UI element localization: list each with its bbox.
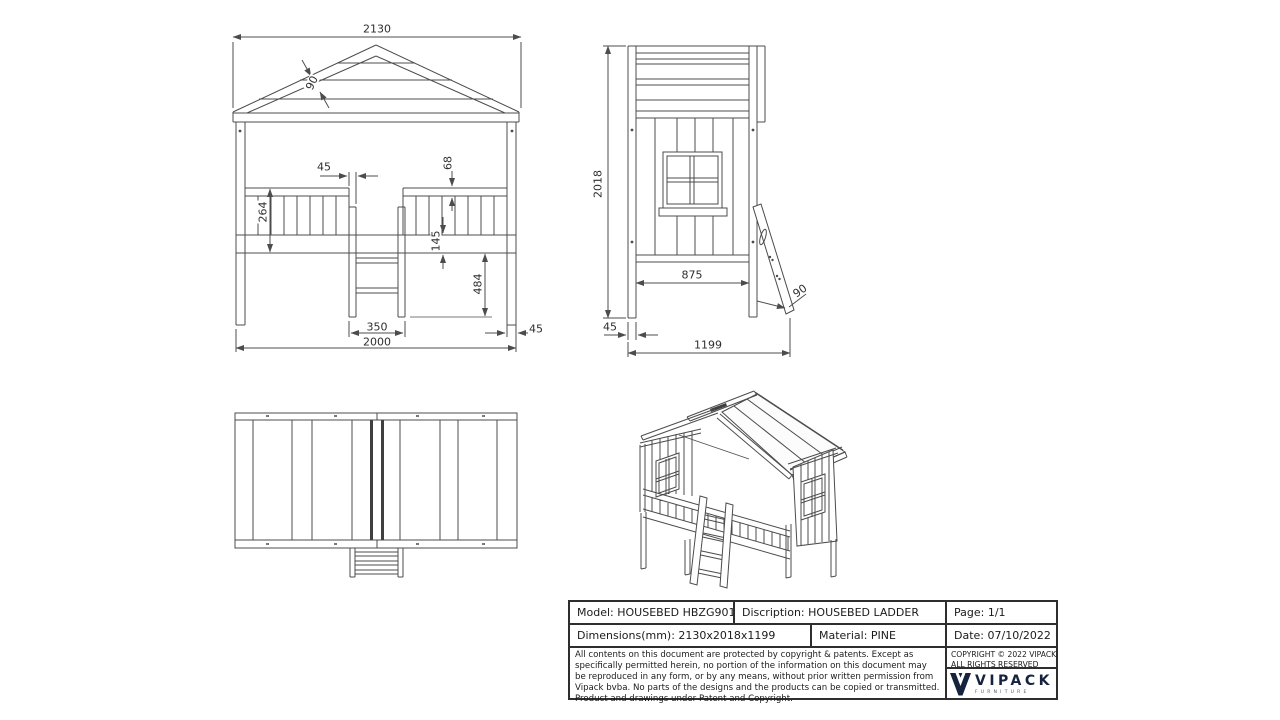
brand-tagline: FURNITURE (975, 690, 1030, 695)
drawing-sheet: 2130 90 45 68 264 145 484 350 2000 45 20… (0, 0, 1280, 720)
dimensions-cell: Dimensions(mm): 2130x2018x1199 (570, 625, 812, 646)
isometric-view (640, 391, 847, 588)
material-cell: Material: PINE (812, 625, 947, 646)
title-block-row-1: Model: HOUSEBED HBZG9014 Discription: HO… (570, 602, 1056, 625)
dim-side-inner-depth: 875 (681, 270, 704, 281)
iso-railing (643, 489, 790, 559)
plan-ladder (350, 548, 403, 577)
vipack-logo-icon (950, 673, 971, 696)
plan-view (235, 413, 517, 577)
dim-front-ladder-width: 350 (366, 322, 389, 333)
side-ladder-board (753, 204, 794, 314)
dim-front-bed-length: 2000 (362, 337, 392, 348)
dim-side-overall-depth: 1199 (693, 340, 723, 351)
front-roof (233, 45, 519, 122)
dim-front-rail-offset: 68 (443, 155, 454, 171)
dim-front-rail-height: 264 (258, 201, 269, 224)
title-block: Model: HOUSEBED HBZG9014 Discription: HO… (568, 600, 1058, 700)
date-cell: Date: 07/10/2022 (947, 625, 1056, 646)
front-ladder (349, 207, 405, 317)
side-view (603, 46, 806, 357)
model-cell: Model: HOUSEBED HBZG9014 (570, 602, 735, 623)
dim-front-post-width: 45 (528, 324, 544, 335)
title-block-row-3: All contents on this document are protec… (570, 648, 1056, 700)
description-cell: Discription: HOUSEBED LADDER (735, 602, 947, 623)
dim-front-under-clearance: 484 (473, 273, 484, 296)
copyright-column: COPYRIGHT © 2022 VIPACK, ALL RIGHTS RESE… (947, 648, 1056, 700)
vipack-logo: VIPACK FURNITURE (947, 669, 1056, 700)
dim-front-rail-gap: 45 (316, 162, 332, 173)
legal-text: All contents on this document are protec… (570, 648, 947, 700)
copyright-line1: COPYRIGHT © 2022 VIPACK, (951, 650, 1056, 659)
copyright-line2: ALL RIGHTS RESERVED (951, 660, 1038, 669)
page-cell: Page: 1/1 (947, 602, 1056, 623)
dim-front-overall-width: 2130 (362, 24, 392, 35)
dim-side-overall-height: 2018 (593, 169, 604, 199)
vipack-logo-text: VIPACK FURNITURE (975, 674, 1053, 695)
front-view (233, 37, 540, 352)
brand-name: VIPACK (975, 674, 1053, 688)
plan-panels (253, 420, 497, 540)
front-railings (245, 188, 507, 235)
title-block-row-2: Dimensions(mm): 2130x2018x1199 Material:… (570, 625, 1056, 648)
copyright-text: COPYRIGHT © 2022 VIPACK, ALL RIGHTS RESE… (947, 648, 1056, 669)
dim-front-frame-height: 145 (431, 230, 442, 253)
dim-side-post-width: 45 (602, 322, 618, 333)
side-window (663, 152, 722, 208)
side-roof (636, 46, 765, 122)
